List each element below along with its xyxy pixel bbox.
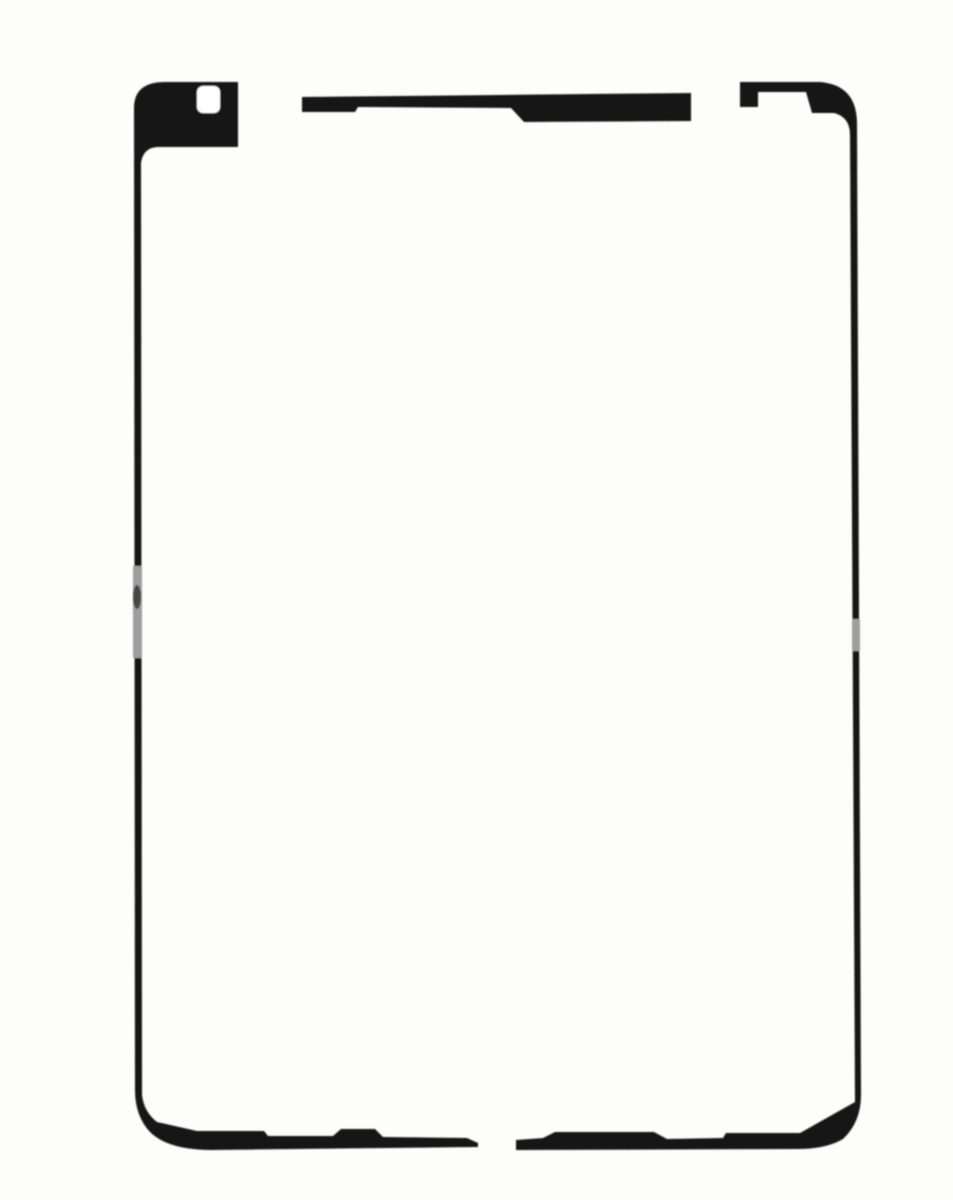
watermark-overlay-right <box>852 619 860 651</box>
watermark-overlay-left <box>133 566 142 658</box>
adhesive-strips-photo <box>0 0 953 1200</box>
photo-background <box>0 0 953 1200</box>
watermark-blob <box>133 585 141 609</box>
product-photo <box>0 0 953 1200</box>
camera-cutout <box>197 86 220 113</box>
